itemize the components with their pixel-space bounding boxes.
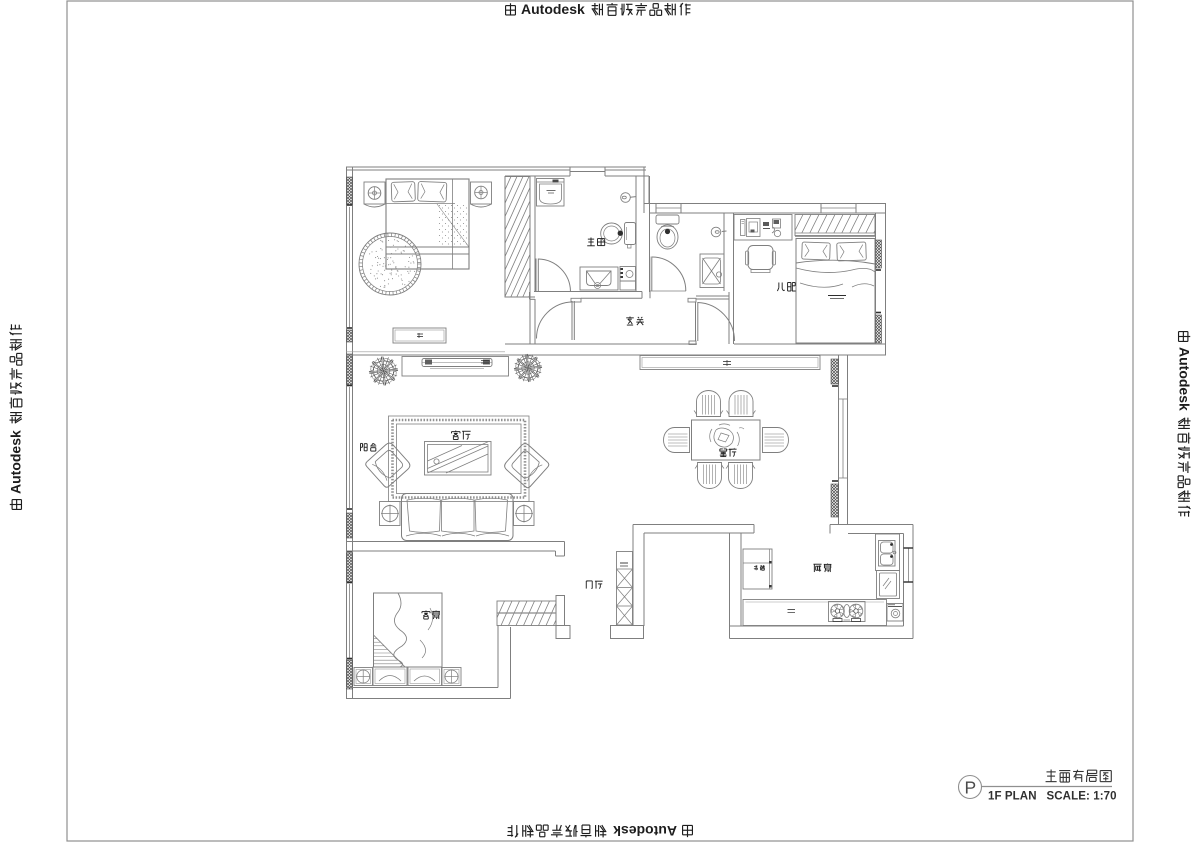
svg-text:Autodesk: Autodesk (8, 430, 24, 494)
svg-text:1F PLAN SCALE: 1:70: 1F PLAN SCALE: 1:70 (988, 791, 1117, 803)
svg-text:Autodesk: Autodesk (613, 823, 677, 839)
svg-text:Autodesk: Autodesk (521, 1, 585, 17)
svg-text:Autodesk: Autodesk (1176, 347, 1192, 411)
svg-text:P: P (965, 778, 977, 798)
